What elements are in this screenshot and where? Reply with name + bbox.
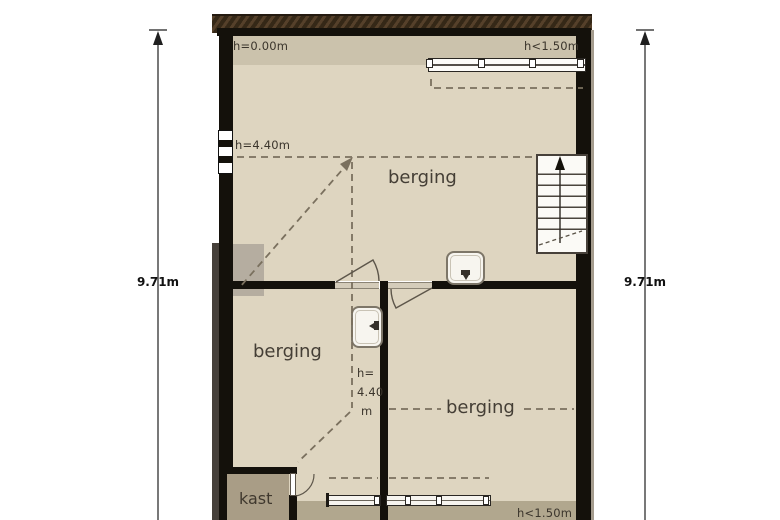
height-label-top-right: h<1.50m bbox=[524, 39, 579, 53]
contour-h150-top-line bbox=[431, 79, 583, 88]
room-label-lower-left: berging bbox=[253, 341, 322, 362]
height-label-top-left: h=0.00m bbox=[233, 39, 288, 53]
height-label-center-l3: m bbox=[357, 402, 383, 421]
room-label-closet: kast bbox=[239, 489, 272, 508]
height-label-center: h= 4.40 m bbox=[357, 364, 383, 421]
plan-linework bbox=[0, 0, 780, 520]
room-label-lower-right: berging bbox=[446, 397, 515, 418]
slope-arrowhead-icon bbox=[340, 157, 353, 171]
floor-plan: h=0.00m h<1.50m h=4.40m berging berging … bbox=[0, 0, 780, 520]
dimension-label-left: 9.71m bbox=[130, 275, 186, 289]
dimension-label-right: 9.71m bbox=[617, 275, 673, 289]
closet-door-swing bbox=[296, 474, 314, 496]
height-label-center-l1: h= bbox=[357, 364, 383, 383]
slope-arrow-line bbox=[240, 162, 349, 287]
room-label-upper: berging bbox=[388, 167, 457, 188]
stair-up-arrow-icon bbox=[555, 156, 565, 170]
height-label-bottom-right: h<1.50m bbox=[517, 506, 572, 520]
door-swing-upper bbox=[336, 260, 379, 282]
door-swing-lower bbox=[391, 288, 432, 308]
height-label-mid-left: h=4.40m bbox=[235, 138, 290, 152]
dimension-arrow-left-icon bbox=[153, 31, 163, 45]
height-label-center-l2: 4.40 bbox=[357, 383, 383, 402]
contour-diagonal-line bbox=[298, 412, 350, 462]
dimension-arrow-right-icon bbox=[640, 31, 650, 45]
